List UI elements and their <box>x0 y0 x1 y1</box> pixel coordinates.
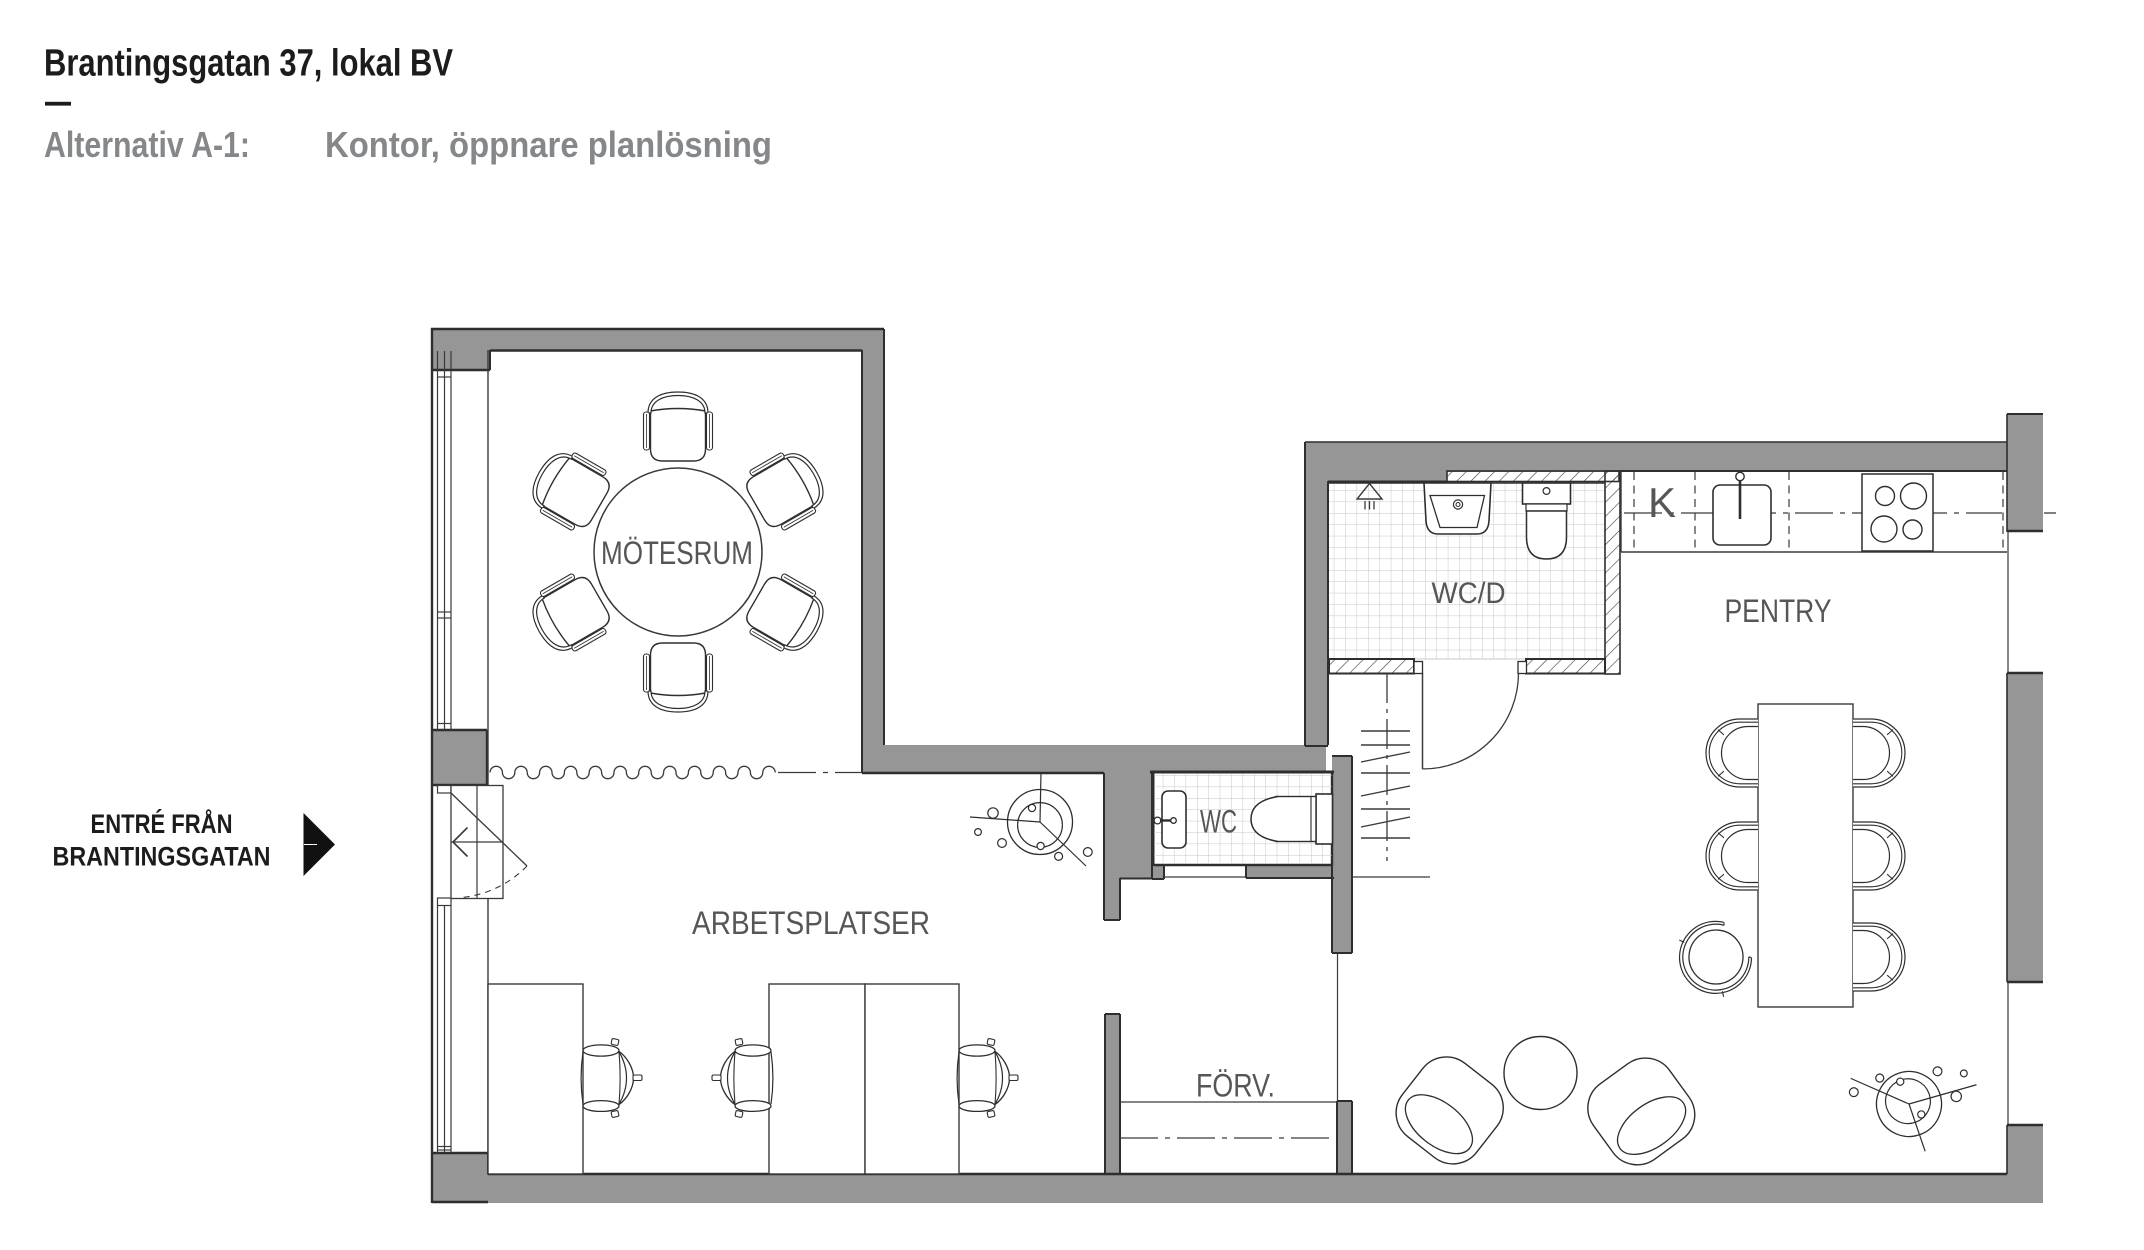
svg-text:WC/D: WC/D <box>1432 577 1506 610</box>
svg-text:BRANTINGSGATAN: BRANTINGSGATAN <box>53 842 271 872</box>
svg-text:Kontor, öppnare planlösning: Kontor, öppnare planlösning <box>325 124 772 165</box>
svg-text:K: K <box>1648 479 1676 526</box>
svg-text:Brantingsgatan 37, lokal BV: Brantingsgatan 37, lokal BV <box>44 42 454 84</box>
svg-text:MÖTESRUM: MÖTESRUM <box>601 535 753 571</box>
svg-text:FÖRV.: FÖRV. <box>1196 1068 1275 1104</box>
svg-text:PENTRY: PENTRY <box>1725 593 1832 629</box>
svg-text:ARBETSPLATSER: ARBETSPLATSER <box>692 905 930 941</box>
svg-text:ENTRÉ FRÅN: ENTRÉ FRÅN <box>91 808 233 839</box>
svg-text:WC: WC <box>1200 804 1237 840</box>
svg-text:Alternativ A-1:: Alternativ A-1: <box>44 124 250 165</box>
